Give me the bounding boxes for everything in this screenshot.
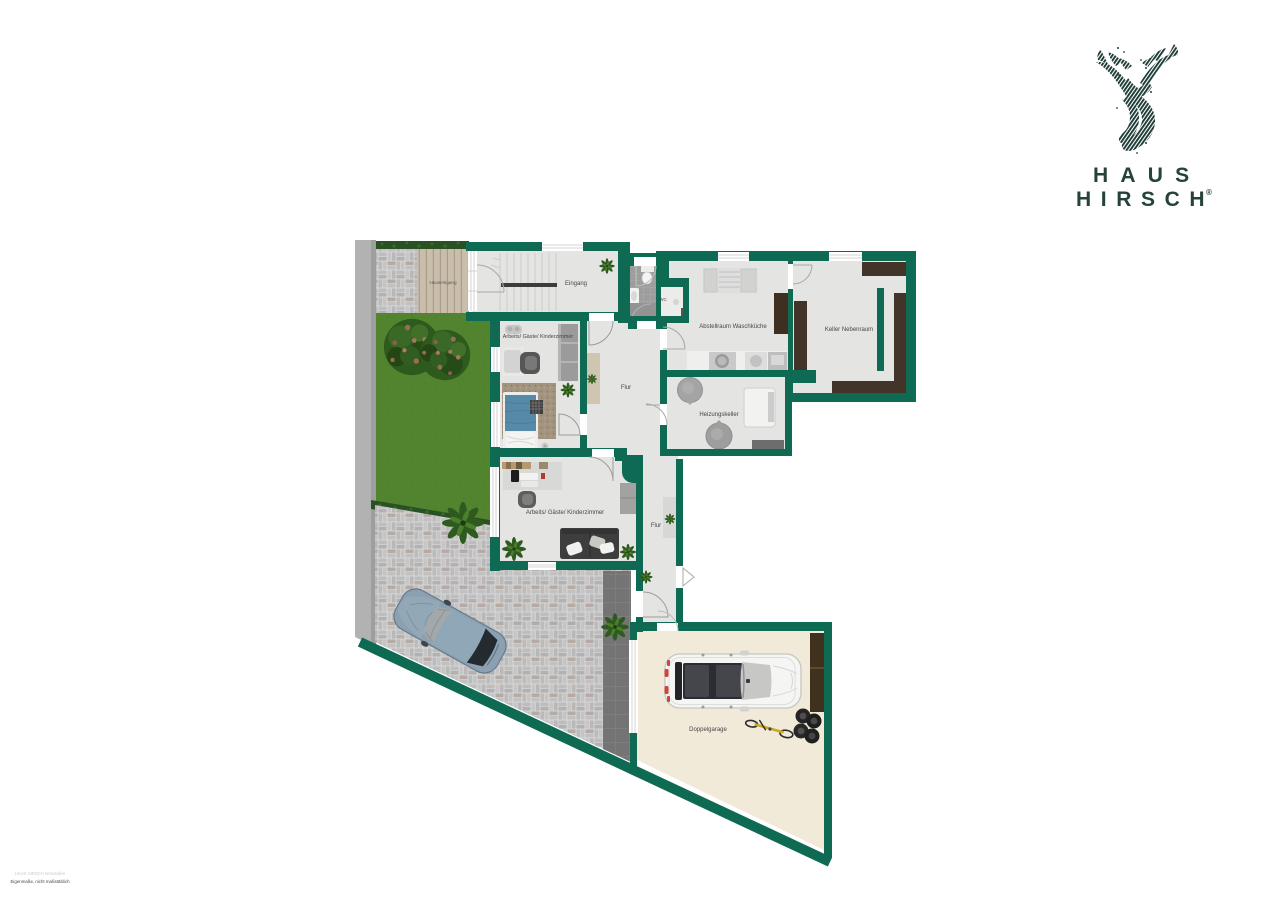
svg-text:WC: WC [659,297,667,302]
svg-text:HAUS HIRSCH Immobilien: HAUS HIRSCH Immobilien [15,871,66,876]
svg-text:Heizungskeller: Heizungskeller [699,412,738,418]
svg-text:HIRSCH: HIRSCH [1076,188,1214,211]
svg-text:Hauseingang: Hauseingang [429,280,457,285]
svg-text:Eingang: Eingang [565,281,587,287]
svg-text:Arbeits/ Gäste/ Kinderzimmer: Arbeits/ Gäste/ Kinderzimmer [503,334,574,340]
svg-text:Flur: Flur [621,385,631,391]
svg-text:Keller Nebenraum: Keller Nebenraum [825,327,873,333]
svg-text:Flur: Flur [651,523,661,529]
svg-text:®: ® [1206,188,1212,197]
svg-text:Doppelgarage: Doppelgarage [689,727,727,733]
svg-text:Arbeits/ Gäste/ Kinderzimmer: Arbeits/ Gäste/ Kinderzimmer [526,510,604,516]
svg-text:Abstellraum Waschküche: Abstellraum Waschküche [699,324,767,330]
svg-text:Eigenmaße, nicht maßstäblich: Eigenmaße, nicht maßstäblich [10,879,70,884]
svg-text:HAUS: HAUS [1093,164,1201,187]
